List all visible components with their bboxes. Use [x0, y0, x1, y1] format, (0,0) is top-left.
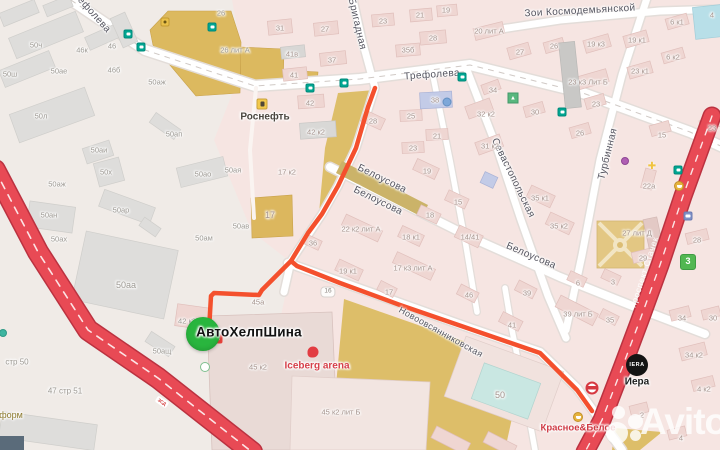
iceb-icon[interactable] [308, 347, 319, 358]
bus-icon[interactable] [684, 212, 693, 221]
fuel-icon[interactable] [257, 99, 268, 110]
destination-marker[interactable] [186, 317, 220, 351]
transit-icon[interactable] [340, 79, 349, 88]
purple-icon[interactable] [621, 157, 629, 165]
blue-icon[interactable] [443, 98, 452, 107]
iera-logo-icon[interactable]: IERA [626, 354, 648, 376]
map-geometry [0, 0, 720, 450]
transit-icon[interactable] [124, 30, 133, 39]
transit-route-badge: 3 [680, 254, 696, 270]
transit-icon[interactable] [306, 84, 315, 93]
building-dark [0, 436, 24, 450]
cross-icon[interactable]: ✚ [647, 162, 657, 172]
transit-icon[interactable] [137, 43, 146, 52]
kb-icon[interactable] [586, 382, 599, 395]
transit-icon[interactable] [674, 166, 683, 175]
avito-watermark-text: Avito [640, 401, 720, 443]
ring-icon[interactable] [200, 362, 210, 372]
cart-icon[interactable] [573, 412, 583, 422]
avito-logo [592, 398, 640, 446]
map-canvas[interactable]: ТрефолеваефолеваБригаднаяЗои Космодемьян… [0, 0, 720, 450]
park-icon[interactable]: ▲ [508, 93, 519, 104]
transit-icon[interactable] [208, 23, 217, 32]
avito-watermark: Avito [592, 398, 720, 446]
shopY-icon[interactable] [161, 18, 170, 27]
transit-icon[interactable] [458, 73, 467, 82]
house-number-plate: 16 [320, 287, 335, 298]
cart-icon[interactable] [674, 181, 684, 191]
transit-icon[interactable] [558, 108, 567, 117]
